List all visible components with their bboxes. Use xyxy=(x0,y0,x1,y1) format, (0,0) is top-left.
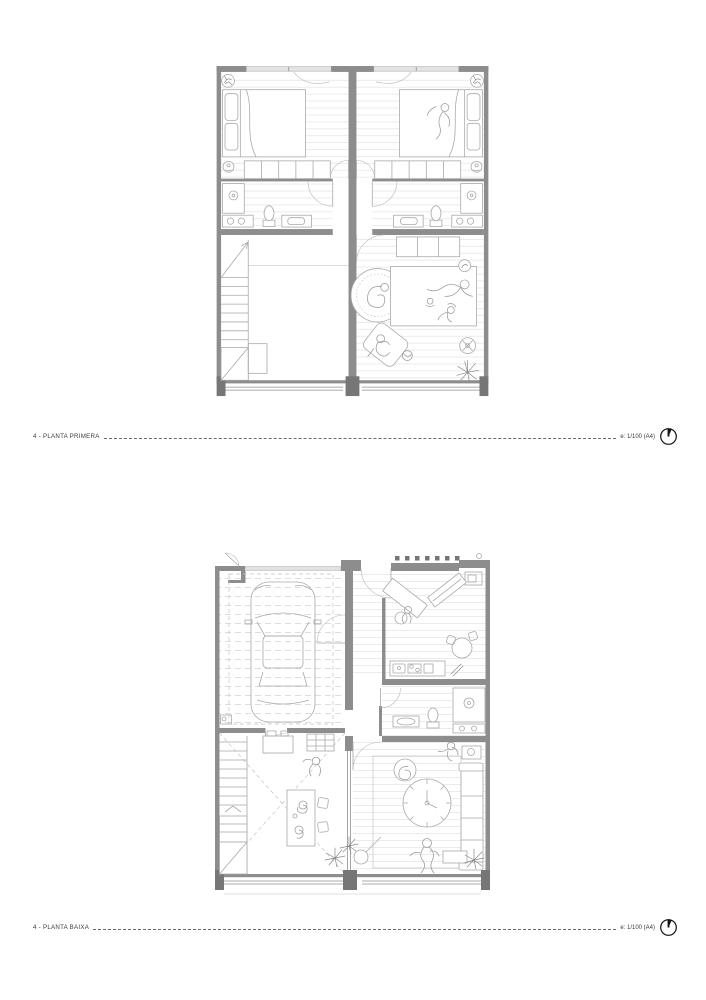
plant-icon xyxy=(471,74,484,87)
floor-plan-ground-drawing xyxy=(215,548,490,905)
floor-plan-planta-primera xyxy=(215,66,490,400)
toilet xyxy=(431,206,441,221)
shower xyxy=(223,184,245,214)
wardrobe xyxy=(375,161,461,179)
toilet xyxy=(264,206,274,221)
vanity xyxy=(394,215,424,227)
chair xyxy=(318,822,329,833)
caption-dash-line xyxy=(93,929,616,930)
plant-icon xyxy=(222,74,235,87)
north-arrow-icon xyxy=(659,427,678,446)
sofa xyxy=(461,770,483,862)
caption-planta-primera: 4 - PLANTA PRIMERA e: 1/100 (A4) xyxy=(33,427,678,441)
floor-plan-planta-baixa xyxy=(215,548,490,905)
wardrobe xyxy=(396,237,459,257)
caption-planta-baixa: 4 - PLANTA BAIXA e: 1/100 (A4) xyxy=(33,918,678,932)
plan-title: 4 - PLANTA PRIMERA xyxy=(33,434,100,441)
shelf-unit xyxy=(307,734,334,751)
north-arrow-icon xyxy=(659,918,678,937)
desk xyxy=(263,736,293,753)
guitar xyxy=(354,850,368,864)
caption-dash-line xyxy=(104,438,617,439)
appliance xyxy=(462,746,481,759)
person-figure xyxy=(312,757,320,765)
play-mat xyxy=(391,267,477,326)
drawing-sheet: 4 - PLANTA PRIMERA e: 1/100 (A4) xyxy=(0,0,706,1000)
patio-dining xyxy=(220,731,359,874)
staircase xyxy=(220,736,248,874)
shower xyxy=(461,184,483,214)
toilet xyxy=(428,708,438,722)
plant-icon xyxy=(325,848,345,867)
vanity xyxy=(282,215,312,227)
plant-icon xyxy=(459,260,471,272)
staircase-left xyxy=(221,240,348,380)
side-table xyxy=(443,851,467,863)
chair xyxy=(317,797,328,808)
scale-note: e: 1/100 (A4) xyxy=(620,434,655,441)
shower xyxy=(453,688,485,722)
stool xyxy=(395,612,407,624)
plan-title: 4 - PLANTA BAIXA xyxy=(33,925,89,932)
wardrobe xyxy=(244,161,330,179)
scale-note: e: 1/100 (A4) xyxy=(620,925,655,932)
floor-plan-first-drawing xyxy=(215,66,490,400)
